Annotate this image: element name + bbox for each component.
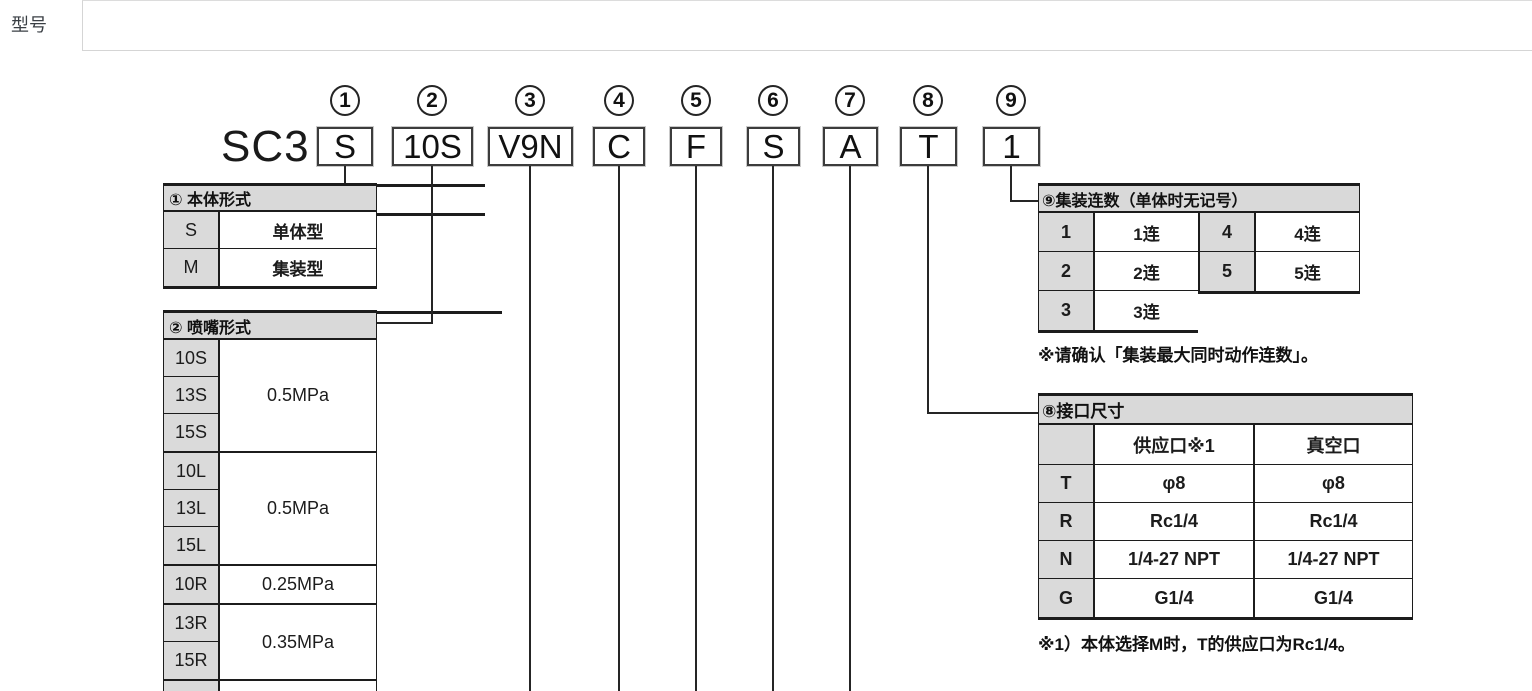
segment-box-7: A (823, 127, 878, 166)
code-cell: 3 (1039, 291, 1095, 330)
code-cell: 5 (1200, 252, 1256, 291)
value-cell: Rc1/4 (1095, 503, 1253, 540)
code-cell: G (1039, 579, 1095, 617)
connector-line (927, 166, 929, 414)
value-cell (220, 681, 376, 691)
tab-bar: 维修零件 规格 (82, 0, 1532, 51)
segment-box-3: V9N (488, 127, 573, 166)
segment-circle-1: 1 (330, 85, 360, 116)
table-row: G G1/4 G1/4 (1039, 579, 1412, 617)
value-cell: φ8 (1095, 465, 1253, 502)
code-cell: M (164, 249, 220, 286)
value-cell: 0.5MPa (220, 340, 376, 451)
corner-cell (1039, 425, 1095, 464)
table-row: M 集装型 (163, 249, 377, 286)
connector-line (927, 412, 1038, 414)
table-body-type: ① 本体形式 S 单体型 M 集装型 (163, 183, 377, 289)
value-cell: 1/4-27 NPT (1095, 541, 1253, 578)
table-nozzle-type: ② 喷嘴形式 10S 13S 15S 0.5MPa 10L 13L 15L 0.… (163, 310, 377, 691)
value-cell: G1/4 (1253, 579, 1412, 617)
segment-circle-2: 2 (417, 85, 447, 116)
table-group: 10R 0.25MPa (163, 566, 377, 605)
code-cell: 2 (1039, 252, 1095, 290)
value-cell: 单体型 (220, 212, 376, 248)
value-cell: 1/4-27 NPT (1253, 541, 1412, 578)
table-body-type-title: ① 本体形式 (163, 186, 377, 212)
segment-circle-8: 8 (913, 85, 943, 116)
value-cell: 集装型 (220, 249, 376, 286)
value-cell: 2连 (1095, 252, 1198, 290)
connector-line (849, 166, 851, 691)
table-group: 10L 13L 15L 0.5MPa (163, 453, 377, 566)
table-row: 4 4连 (1200, 213, 1359, 252)
value-cell: φ8 (1253, 465, 1412, 502)
table-header-row: 供应口※1 真空口 (1039, 425, 1412, 465)
table-port-size: ⑧接口尺寸 供应口※1 真空口 T φ8 φ8 R Rc1/4 Rc1/4 N … (1038, 393, 1413, 620)
segment-box-1: S (317, 127, 373, 166)
segment-box-8: T (900, 127, 957, 166)
segment-box-9: 1 (983, 127, 1040, 166)
value-cell: 0.35MPa (220, 605, 376, 679)
table-nozzle-type-title: ② 喷嘴形式 (163, 313, 377, 340)
segment-box-5: F (670, 127, 722, 166)
connector-line (1010, 166, 1012, 202)
code-cell: 4 (1200, 213, 1256, 251)
page: 型号 维修零件 规格 SC3 1 2 3 4 5 6 7 8 9 S 10S V… (0, 0, 1532, 691)
code-cell: 15R (164, 642, 218, 679)
code-cell: 13L (164, 490, 218, 527)
table-row: N 1/4-27 NPT 1/4-27 NPT (1039, 541, 1412, 579)
value-cell: 0.5MPa (220, 453, 376, 564)
port-size-note: ※1）本体选择M时，T的供应口为Rc1/4。 (1038, 630, 1355, 655)
table-row: 2 2连 (1039, 252, 1198, 291)
table-row: 3 3连 (1039, 291, 1198, 330)
value-cell: G1/4 (1095, 579, 1253, 617)
column-header: 真空口 (1253, 425, 1412, 464)
segment-circle-9: 9 (996, 85, 1026, 116)
table-row: S 单体型 (163, 212, 377, 249)
tab-model[interactable]: 型号 (0, 0, 82, 51)
column-header: 供应口※1 (1095, 425, 1253, 464)
code-cell: 10R (164, 566, 218, 603)
segment-circle-3: 3 (515, 85, 545, 116)
code-cell: 10L (164, 453, 218, 490)
connector-line (377, 322, 433, 324)
segment-circle-7: 7 (835, 85, 865, 116)
code-cell: 10S (164, 340, 218, 377)
code-cell: 13S (164, 377, 218, 414)
value-cell: 3连 (1095, 291, 1198, 330)
connector-line (618, 166, 620, 691)
segment-box-2: 10S (392, 127, 473, 166)
value-cell: 1连 (1095, 213, 1198, 251)
code-cell: 13R (164, 605, 218, 642)
table-station-count-title: ⑨集装连数（单体时无记号） (1038, 186, 1360, 213)
code-cell: 15L (164, 527, 218, 564)
segment-box-6: S (747, 127, 800, 166)
connector-line (695, 166, 697, 691)
table-row: 5 5连 (1200, 252, 1359, 291)
connector-line (772, 166, 774, 691)
value-cell: 5连 (1256, 252, 1359, 291)
value-cell: 0.25MPa (220, 566, 376, 603)
table-row: 1 1连 (1039, 213, 1198, 252)
table-station-count: ⑨集装连数（单体时无记号） 1 1连 2 2连 3 3连 4 (1038, 183, 1360, 333)
code-cell: N (1039, 541, 1095, 578)
segment-circle-5: 5 (681, 85, 711, 116)
connector-line (1010, 200, 1038, 202)
table-row-partial (163, 681, 377, 691)
station-count-note: ※请确认「集装最大同时动作连数」。 (1038, 341, 1318, 366)
table-group: 10S 13S 15S 0.5MPa (163, 340, 377, 453)
model-prefix: SC3 (221, 122, 310, 172)
table-group: 13R 15R 0.35MPa (163, 605, 377, 681)
connector-line (431, 166, 433, 324)
code-cell: 15S (164, 414, 218, 451)
segment-circle-4: 4 (604, 85, 634, 116)
table-row: T φ8 φ8 (1039, 465, 1412, 503)
code-cell: T (1039, 465, 1095, 502)
table-port-size-title: ⑧接口尺寸 (1039, 396, 1412, 425)
segment-box-4: C (593, 127, 645, 166)
connector-line (529, 166, 531, 691)
connector-line (344, 166, 346, 183)
code-cell: R (1039, 503, 1095, 540)
code-cell: 1 (1039, 213, 1095, 251)
value-cell: 4连 (1256, 213, 1359, 251)
code-cell: S (164, 212, 220, 248)
code-cell (164, 681, 220, 691)
value-cell: Rc1/4 (1253, 503, 1412, 540)
segment-circle-6: 6 (758, 85, 788, 116)
table-row: R Rc1/4 Rc1/4 (1039, 503, 1412, 541)
